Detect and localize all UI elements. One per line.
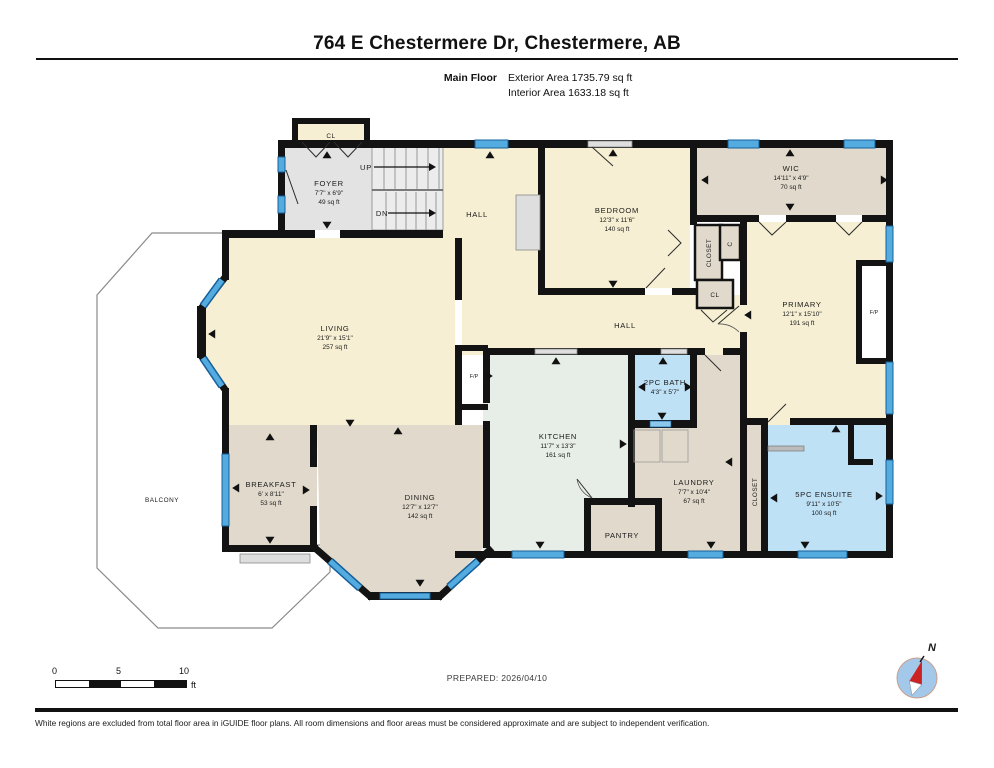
interior-area: Interior Area 1633.18 sq ft — [508, 87, 629, 99]
room-label-wic: WIC — [783, 164, 800, 173]
room-area-kitchen: 161 sq ft — [546, 452, 571, 459]
exterior-area: Exterior Area 1735.79 sq ft — [508, 72, 632, 84]
room-label-closet-small: C — [727, 241, 734, 246]
room-dims-bedroom: 12'3" x 11'6" — [599, 217, 635, 224]
room-dims-primary: 12'1" x 15'10" — [782, 311, 822, 318]
room-dims-laundry: 7'7" x 10'4" — [678, 489, 711, 496]
room-label-bath2pc: 2PC BATH — [644, 378, 686, 387]
room-label-hall-upper: HALL — [466, 210, 488, 219]
prepared-date: PREPARED: 2026/04/10 — [0, 673, 994, 683]
room-label-laundry: LAUNDRY — [673, 478, 714, 487]
room-label-pantry: PANTRY — [605, 531, 639, 540]
room-label-closet-ensuite: CLOSET — [752, 478, 759, 507]
fireplace-living-label: F/P — [470, 374, 479, 380]
compass-north-label: N — [928, 642, 937, 654]
room-label-breakfast: BREAKFAST — [245, 480, 296, 489]
room-label-hall-lower: HALL — [614, 321, 636, 330]
floorplan-page: 764 E Chestermere Dr, Chestermere, AB Ma… — [0, 0, 994, 768]
room-area-laundry: 67 sq ft — [683, 498, 705, 505]
room-label-bedroom: BEDROOM — [595, 206, 639, 215]
floor-label: Main Floor — [0, 72, 497, 84]
room-area-breakfast: 53 sq ft — [260, 500, 282, 507]
room-dims-dining: 12'7" x 12'7" — [402, 504, 438, 511]
room-dims-breakfast: 6' x 8'11" — [258, 491, 284, 498]
footer-divider — [35, 708, 958, 712]
fireplace-primary-label: F/P — [870, 310, 879, 316]
room-dims-kitchen: 11'7" x 13'3" — [540, 443, 576, 450]
room-dims-bath2pc: 4'3" x 5'7" — [651, 389, 680, 396]
room-area-foyer: 49 sq ft — [318, 199, 340, 206]
stairs-dn-label: DN — [376, 209, 388, 218]
stairs-up-label: UP — [360, 163, 372, 172]
room-area-ensuite: 100 sq ft — [812, 510, 837, 517]
room-area-bedroom: 140 sq ft — [605, 226, 630, 233]
compass-icon: N — [888, 636, 950, 708]
room-label-cl-entry: CL — [326, 133, 335, 140]
disclaimer-text: White regions are excluded from total fl… — [35, 718, 965, 728]
room-label-ensuite: 5PC ENSUITE — [795, 490, 853, 499]
room-dims-living: 21'9" x 15'1" — [317, 335, 353, 342]
room-label-cl-hall: CL — [710, 292, 719, 299]
room-dims-foyer: 7'7" x 6'9" — [315, 190, 344, 197]
room-area-primary: 191 sq ft — [790, 320, 815, 327]
floor-plan: CL FOYER 7'7" x 6'9" 49 sq ft UP DN HALL… — [0, 110, 994, 640]
room-label-foyer: FOYER — [314, 179, 344, 188]
room-area-wic: 70 sq ft — [780, 184, 802, 191]
room-label-living: LIVING — [320, 324, 349, 333]
room-dims-wic: 14'11" x 4'9" — [773, 175, 809, 182]
room-label-balcony: BALCONY — [145, 497, 179, 504]
room-area-living: 257 sq ft — [323, 344, 348, 351]
room-dims-ensuite: 9'11" x 10'5" — [806, 501, 842, 508]
room-label-dining: DINING — [405, 493, 436, 502]
room-label-kitchen: KITCHEN — [539, 432, 577, 441]
page-title: 764 E Chestermere Dr, Chestermere, AB — [0, 33, 994, 55]
title-divider — [36, 58, 958, 60]
room-area-dining: 142 sq ft — [408, 513, 433, 520]
room-label-closet-bedroom: CLOSET — [706, 239, 713, 268]
room-label-primary: PRIMARY — [782, 300, 821, 309]
